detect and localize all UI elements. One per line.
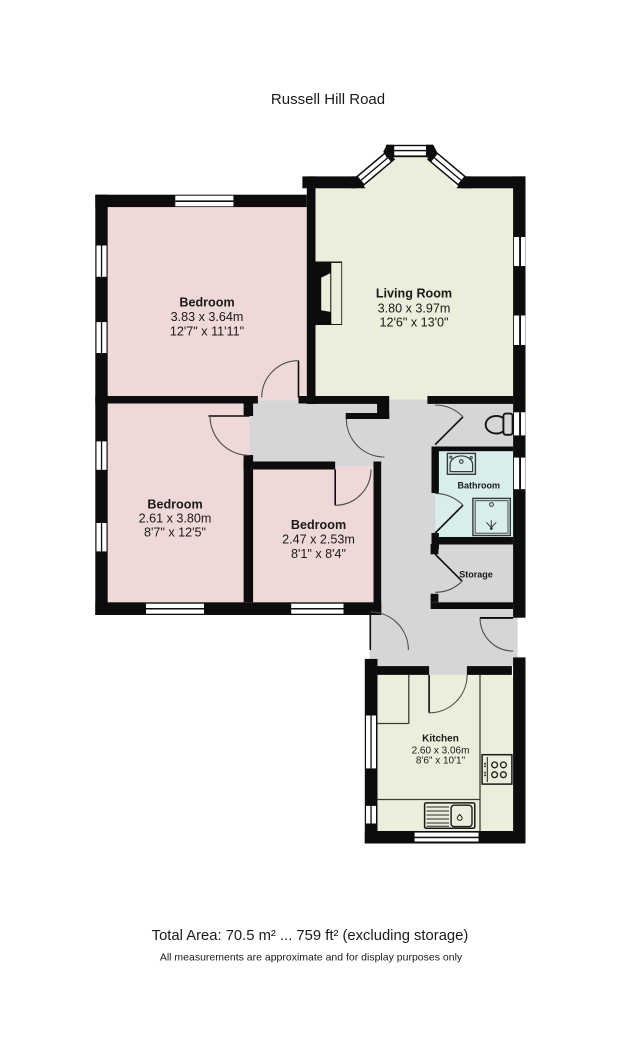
svg-text:Bedroom: Bedroom (147, 498, 202, 512)
svg-text:8'7" x 12'5": 8'7" x 12'5" (144, 526, 206, 540)
svg-text:Bedroom: Bedroom (291, 518, 346, 532)
svg-text:2.61 x 3.80m: 2.61 x 3.80m (139, 512, 212, 526)
svg-text:Kitchen: Kitchen (422, 734, 459, 745)
svg-text:2.47 x 2.53m: 2.47 x 2.53m (282, 533, 355, 547)
svg-text:Living Room: Living Room (376, 287, 452, 301)
svg-text:3.80 x 3.97m: 3.80 x 3.97m (378, 302, 451, 316)
svg-text:Bathroom: Bathroom (458, 481, 501, 491)
svg-text:Storage: Storage (459, 570, 493, 580)
svg-text:Russell Hill Road: Russell Hill Road (271, 91, 385, 108)
svg-text:8'1" x 8'4": 8'1" x 8'4" (291, 547, 346, 561)
svg-text:12'7" x 11'11": 12'7" x 11'11" (170, 325, 244, 339)
svg-text:Total Area: 70.5 m² ... 759 ft: Total Area: 70.5 m² ... 759 ft² (excludi… (152, 928, 469, 944)
svg-text:All measurements are approxima: All measurements are approximate and for… (160, 952, 463, 964)
svg-text:3.83 x 3.64m: 3.83 x 3.64m (171, 310, 244, 324)
svg-text:8'6" x 10'1": 8'6" x 10'1" (416, 756, 466, 767)
svg-text:Bedroom: Bedroom (179, 296, 234, 310)
svg-text:12'6" x 13'0": 12'6" x 13'0" (379, 316, 448, 330)
